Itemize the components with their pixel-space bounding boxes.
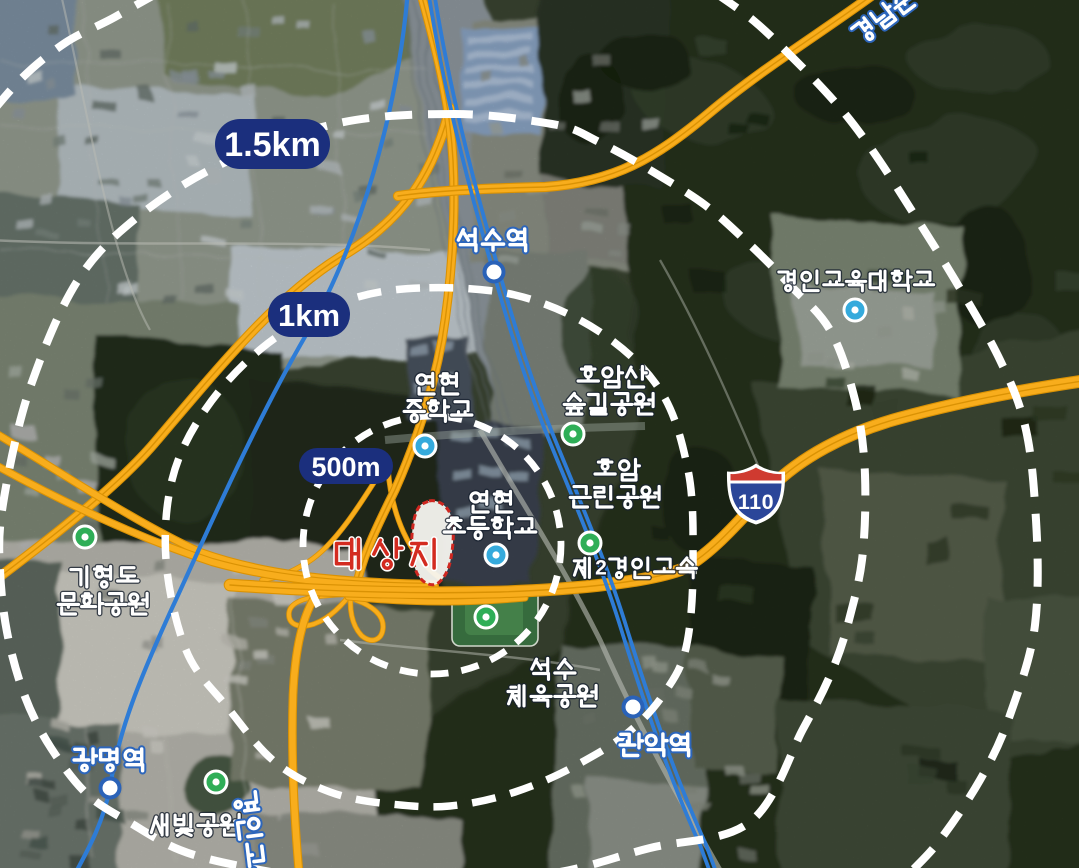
svg-text:2: 2: [595, 557, 607, 580]
svg-text:500m: 500m: [311, 452, 380, 482]
svg-text:110: 110: [738, 490, 774, 514]
svg-text:1km: 1km: [278, 298, 340, 333]
svg-text:1.5km: 1.5km: [224, 126, 320, 164]
